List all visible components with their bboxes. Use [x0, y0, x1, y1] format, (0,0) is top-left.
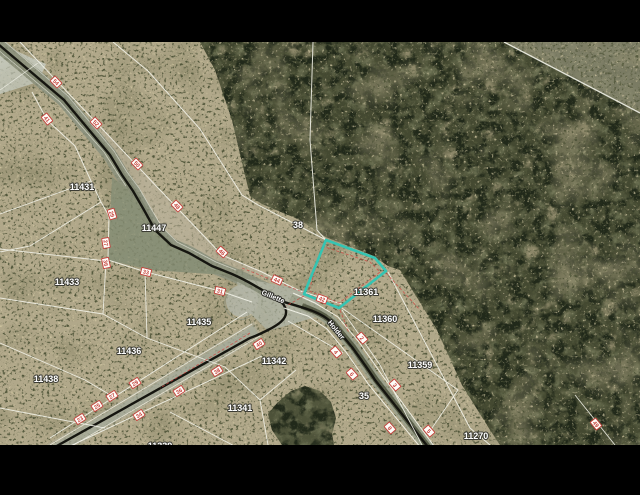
svg-text:11360: 11360: [373, 314, 398, 324]
svg-text:11359: 11359: [408, 360, 433, 370]
svg-text:11342: 11342: [262, 356, 287, 366]
svg-text:11435: 11435: [187, 317, 212, 327]
svg-text:36: 36: [101, 260, 108, 267]
svg-text:11447: 11447: [142, 223, 167, 233]
svg-text:38: 38: [293, 220, 303, 230]
svg-text:11433: 11433: [55, 277, 80, 287]
svg-text:35: 35: [359, 391, 369, 401]
svg-text:11341: 11341: [228, 403, 253, 413]
svg-text:11431: 11431: [70, 182, 95, 192]
svg-text:11270: 11270: [464, 431, 489, 441]
svg-text:11361: 11361: [354, 287, 379, 297]
svg-text:11436: 11436: [117, 346, 142, 356]
svg-text:11438: 11438: [34, 374, 59, 384]
svg-text:27: 27: [101, 240, 108, 247]
